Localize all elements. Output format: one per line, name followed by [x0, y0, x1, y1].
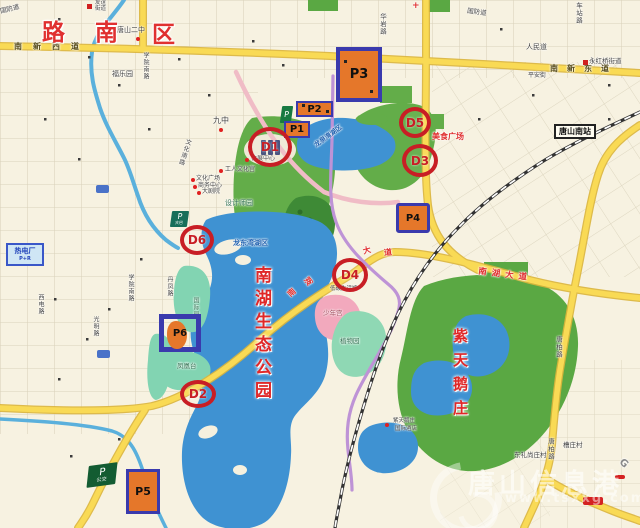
poi-dot-wenhuagong [219, 169, 223, 173]
d1-label: D1 [261, 140, 279, 154]
place-jiuzhong: 九中 [213, 117, 229, 125]
village-dongli: 东礼尚庄村 [514, 452, 547, 459]
p2-dot [302, 104, 305, 107]
poi-dot-wenhua-square [191, 178, 195, 182]
p-bus-text: 公交 [96, 477, 107, 483]
road-label-renmin: 人民道 [526, 44, 547, 51]
tangshan-south-station[interactable]: 唐山南站 [554, 124, 596, 139]
road-label-nanhu-char-4: 道 [384, 249, 393, 258]
dropoff-marker-d5[interactable]: D5 [399, 107, 431, 138]
place-hotel-1: 紫天鹅庄 [393, 419, 415, 425]
road-label-tangbai-s: 唐柏路 [547, 438, 554, 461]
road-label-xueyuan-s: 学院南路 [127, 274, 133, 302]
place-theater: 大剧院 [202, 189, 220, 195]
poi-dot-shangwu [193, 185, 197, 189]
place-fuleyuan: 福乐园 [112, 71, 133, 78]
tangshan-nanhu-park-map[interactable]: 路 南 区 国防道 国防道 人民道 平安街 南新西道 南新东道 华岩路 车站路 … [0, 0, 640, 528]
dropoff-marker-d4[interactable]: D4 [332, 258, 368, 292]
power-plant-park-ride[interactable]: 热电厂 P+R [6, 243, 44, 266]
p2-dot [326, 110, 329, 113]
place-food-plaza: 美食广场 [432, 133, 464, 141]
p-sign-letter: P [284, 111, 290, 119]
parking-marker-p5[interactable]: P5 [126, 469, 160, 514]
park-name-swan: 紫天鹅庄 [452, 328, 467, 424]
park-name-nanhu: 南湖生态公园 [252, 266, 269, 404]
place-hotel-2: 国际酒店 [395, 427, 417, 433]
watermark-url: www.tsxxg.com [505, 491, 640, 506]
poi-tag [96, 185, 109, 193]
poi-square-yonghongqiao [583, 60, 588, 65]
road-label-xueyuan-n: 学院南路 [142, 52, 148, 80]
road-label-huayan: 华岩路 [379, 13, 386, 36]
road-label-guangming: 光明路 [92, 316, 98, 337]
poi-dot-no2 [136, 37, 140, 41]
road-label-tangbai-n: 唐柏路 [555, 336, 562, 359]
dropoff-marker-d2[interactable]: D2 [180, 380, 216, 408]
place-wenhuagong: 工人文化宫 [225, 167, 255, 173]
parking-marker-p4[interactable]: P4 [396, 203, 430, 233]
place-yonghongqiao: 永红桥街道 [589, 58, 622, 65]
poi-dot-huizhan [245, 158, 249, 162]
dropoff-marker-d3[interactable]: D3 [402, 144, 438, 177]
poi-dot-jiuzhong [219, 128, 223, 132]
parking-marker-p3[interactable]: P3 [336, 47, 382, 102]
place-botanic-garden: 植物园 [340, 338, 360, 345]
village-caozhuang: 槽庄村 [563, 442, 583, 449]
place-designer-garden: 设计师园 [225, 200, 253, 207]
plant-code: P+R [19, 256, 31, 262]
dropoff-marker-d1[interactable]: D1 [248, 127, 292, 167]
place-youth-palace: 少年宫 [323, 310, 343, 317]
road-label-danfeng: 丹凤路 [166, 276, 172, 297]
p-daba-text: 大巴 [175, 221, 184, 225]
parking-marker-p6[interactable]: P6 [159, 314, 201, 352]
district-char-2: 南 [95, 22, 118, 45]
poi-square-youyi [87, 4, 92, 9]
poi-dot-theater [197, 191, 201, 195]
parking-sign-bus[interactable]: P 公交 [86, 462, 117, 488]
district-char-3: 区 [152, 24, 175, 47]
road-label-nanxin-east: 南新东道 [550, 65, 618, 73]
parking-sign-daba[interactable]: P 大巴 [170, 211, 189, 227]
dropoff-marker-d6[interactable]: D6 [180, 225, 214, 255]
p6-label: P6 [173, 328, 187, 339]
road-label-xidian: 西电路 [37, 294, 43, 315]
p3-dot [344, 60, 347, 63]
district-char-1: 路 [42, 22, 65, 45]
lake-label-longdongwan: 龙东湾湖区 [233, 240, 268, 247]
road-label-pingan: 平安街 [528, 73, 546, 79]
place-fenghuangtai: 凤凰台 [177, 363, 197, 370]
place-youyi-2: 街道 [95, 7, 106, 13]
poi-tag [97, 350, 110, 358]
p3-dot [370, 90, 373, 93]
map-canvas [0, 0, 640, 528]
place-tangshan-no2: 唐山二中 [117, 27, 145, 34]
plant-name: 热电厂 [15, 247, 36, 255]
hospital-cross-icon: + [412, 2, 420, 11]
road-label-chezhan: 车站路 [575, 2, 582, 25]
poi-dot-hotel [385, 423, 389, 427]
